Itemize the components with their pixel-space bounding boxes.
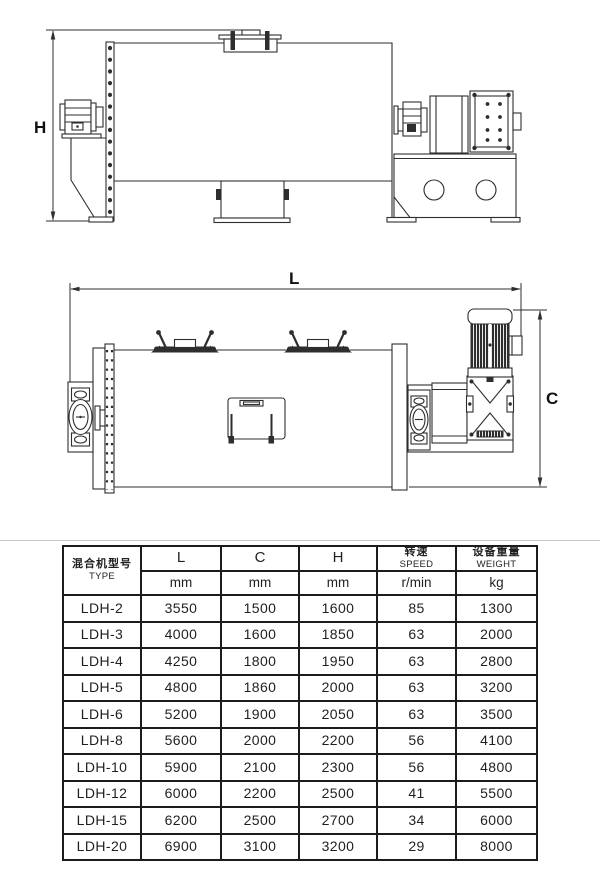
value-cell: 2200 <box>299 728 377 755</box>
value-cell: 5600 <box>141 728 221 755</box>
dim-label-l: L <box>289 269 299 288</box>
unit-weight: kg <box>456 571 537 595</box>
value-cell: 1860 <box>221 675 299 702</box>
manhole-cover-2 <box>284 330 352 352</box>
model-cell: LDH-20 <box>63 834 141 861</box>
value-cell: 4800 <box>141 675 221 702</box>
speed-header-en: SPEED <box>378 560 455 570</box>
model-cell: LDH-12 <box>63 781 141 808</box>
weight-header-en: WEIGHT <box>457 560 536 570</box>
left-flange-plan <box>105 344 114 493</box>
feeder-motor <box>60 100 103 138</box>
right-bearing-housing <box>408 390 430 450</box>
value-cell: 1600 <box>221 622 299 649</box>
value-cell: 4000 <box>141 622 221 649</box>
gear-reducer-plan <box>467 376 514 440</box>
header-row-1: 混合机型号 TYPE L C H 转速 SPEED 设备重量 WEIGHT <box>63 546 537 571</box>
side-elevation-view: H <box>34 30 521 223</box>
value-cell: 1850 <box>299 622 377 649</box>
value-cell: 56 <box>377 754 456 781</box>
model-cell: LDH-3 <box>63 622 141 649</box>
value-cell: 2800 <box>456 648 537 675</box>
model-cell: LDH-5 <box>63 675 141 702</box>
speed-header-zh: 转速 <box>378 547 455 559</box>
left-end-plate <box>93 348 105 489</box>
value-cell: 6900 <box>141 834 221 861</box>
value-cell: 1800 <box>221 648 299 675</box>
dim-label-c: C <box>546 389 558 408</box>
model-cell: LDH-10 <box>63 754 141 781</box>
spec-table-body: LDH-2355015001600851300LDH-3400016001850… <box>63 595 537 860</box>
value-cell: 2300 <box>299 754 377 781</box>
spec-table: 混合机型号 TYPE L C H 转速 SPEED 设备重量 WEIGHT mm… <box>62 545 538 861</box>
col-header-h: H <box>299 546 377 571</box>
table-row: LDH-8560020002200564100 <box>63 728 537 755</box>
table-row: LDH-12600022002500415500 <box>63 781 537 808</box>
drive-base-pedestal <box>387 154 520 222</box>
value-cell: 5900 <box>141 754 221 781</box>
value-cell: 2000 <box>456 622 537 649</box>
value-cell: 3200 <box>456 675 537 702</box>
left-end-flange <box>106 42 114 221</box>
value-cell: 63 <box>377 648 456 675</box>
value-cell: 2000 <box>221 728 299 755</box>
value-cell: 3500 <box>456 701 537 728</box>
value-cell: 8000 <box>456 834 537 861</box>
model-cell: LDH-15 <box>63 807 141 834</box>
dimension-l: L <box>70 269 521 386</box>
unit-l: mm <box>141 571 221 595</box>
drive-unit-side <box>394 91 521 153</box>
value-cell: 1900 <box>221 701 299 728</box>
value-cell: 5200 <box>141 701 221 728</box>
table-row: LDH-6520019002050633500 <box>63 701 537 728</box>
dim-label-h: H <box>34 118 46 137</box>
value-cell: 2000 <box>299 675 377 702</box>
unit-h: mm <box>299 571 377 595</box>
value-cell: 85 <box>377 595 456 622</box>
value-cell: 56 <box>377 728 456 755</box>
gearbox-plan <box>432 383 467 443</box>
col-header-l: L <box>141 546 221 571</box>
value-cell: 1950 <box>299 648 377 675</box>
value-cell: 1300 <box>456 595 537 622</box>
value-cell: 4800 <box>456 754 537 781</box>
value-cell: 6000 <box>141 781 221 808</box>
value-cell: 6200 <box>141 807 221 834</box>
table-row: LDH-2355015001600851300 <box>63 595 537 622</box>
col-header-type: 混合机型号 TYPE <box>63 546 141 595</box>
value-cell: 63 <box>377 622 456 649</box>
value-cell: 2200 <box>221 781 299 808</box>
value-cell: 34 <box>377 807 456 834</box>
value-cell: 5500 <box>456 781 537 808</box>
table-row: LDH-10590021002300564800 <box>63 754 537 781</box>
value-cell: 4250 <box>141 648 221 675</box>
value-cell: 2700 <box>299 807 377 834</box>
model-cell: LDH-6 <box>63 701 141 728</box>
type-header-en: TYPE <box>64 572 140 582</box>
value-cell: 2500 <box>299 781 377 808</box>
value-cell: 1600 <box>299 595 377 622</box>
plan-view: L <box>68 269 558 493</box>
weight-header-zh: 设备重量 <box>457 547 536 559</box>
value-cell: 63 <box>377 701 456 728</box>
col-header-c: C <box>221 546 299 571</box>
table-row: LDH-4425018001950632800 <box>63 648 537 675</box>
bottom-discharge-box <box>214 181 290 223</box>
value-cell: 63 <box>377 675 456 702</box>
value-cell: 29 <box>377 834 456 861</box>
col-header-speed: 转速 SPEED <box>377 546 456 571</box>
technical-drawing: H <box>0 0 600 530</box>
value-cell: 3200 <box>299 834 377 861</box>
value-cell: 6000 <box>456 807 537 834</box>
right-end-plate-plan <box>392 344 407 490</box>
col-header-weight: 设备重量 WEIGHT <box>456 546 537 571</box>
model-cell: LDH-2 <box>63 595 141 622</box>
unit-c: mm <box>221 571 299 595</box>
value-cell: 4100 <box>456 728 537 755</box>
spec-sheet-page: { "page": {"background": "#ffffff"}, "di… <box>0 0 600 873</box>
table-row: LDH-3400016001850632000 <box>63 622 537 649</box>
value-cell: 2050 <box>299 701 377 728</box>
unit-speed: r/min <box>377 571 456 595</box>
model-cell: LDH-4 <box>63 648 141 675</box>
value-cell: 3550 <box>141 595 221 622</box>
model-cell: LDH-8 <box>63 728 141 755</box>
table-row: LDH-20690031003200298000 <box>63 834 537 861</box>
value-cell: 3100 <box>221 834 299 861</box>
motor-plan <box>468 309 522 382</box>
value-cell: 41 <box>377 781 456 808</box>
manhole-cover-1 <box>151 330 219 352</box>
value-cell: 1500 <box>221 595 299 622</box>
left-bearing-housing <box>68 382 93 452</box>
table-row: LDH-15620025002700346000 <box>63 807 537 834</box>
access-door <box>228 398 285 444</box>
table-row: LDH-5480018602000633200 <box>63 675 537 702</box>
top-inlet-lid <box>219 30 281 52</box>
value-cell: 2100 <box>221 754 299 781</box>
value-cell: 2500 <box>221 807 299 834</box>
type-header-zh: 混合机型号 <box>64 559 140 571</box>
section-divider <box>0 540 600 541</box>
